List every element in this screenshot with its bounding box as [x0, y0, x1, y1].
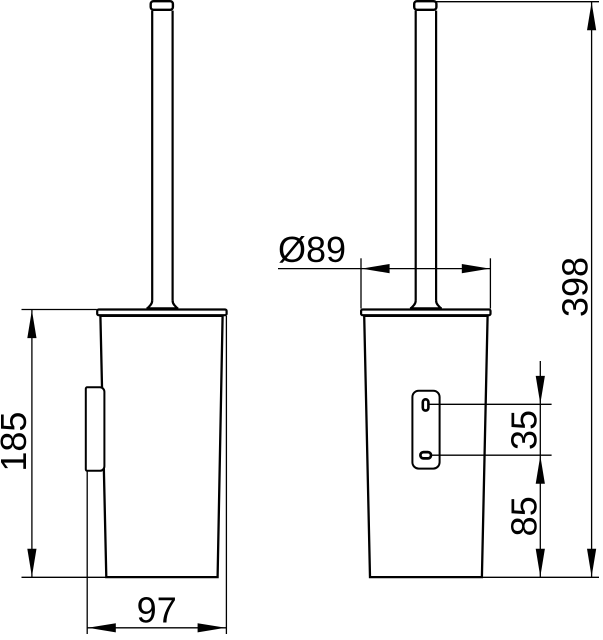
- svg-text:35: 35: [503, 410, 544, 450]
- svg-text:398: 398: [554, 257, 595, 317]
- svg-text:Ø89: Ø89: [278, 229, 346, 270]
- svg-text:185: 185: [0, 412, 34, 472]
- svg-text:85: 85: [503, 496, 544, 536]
- svg-text:97: 97: [137, 589, 177, 630]
